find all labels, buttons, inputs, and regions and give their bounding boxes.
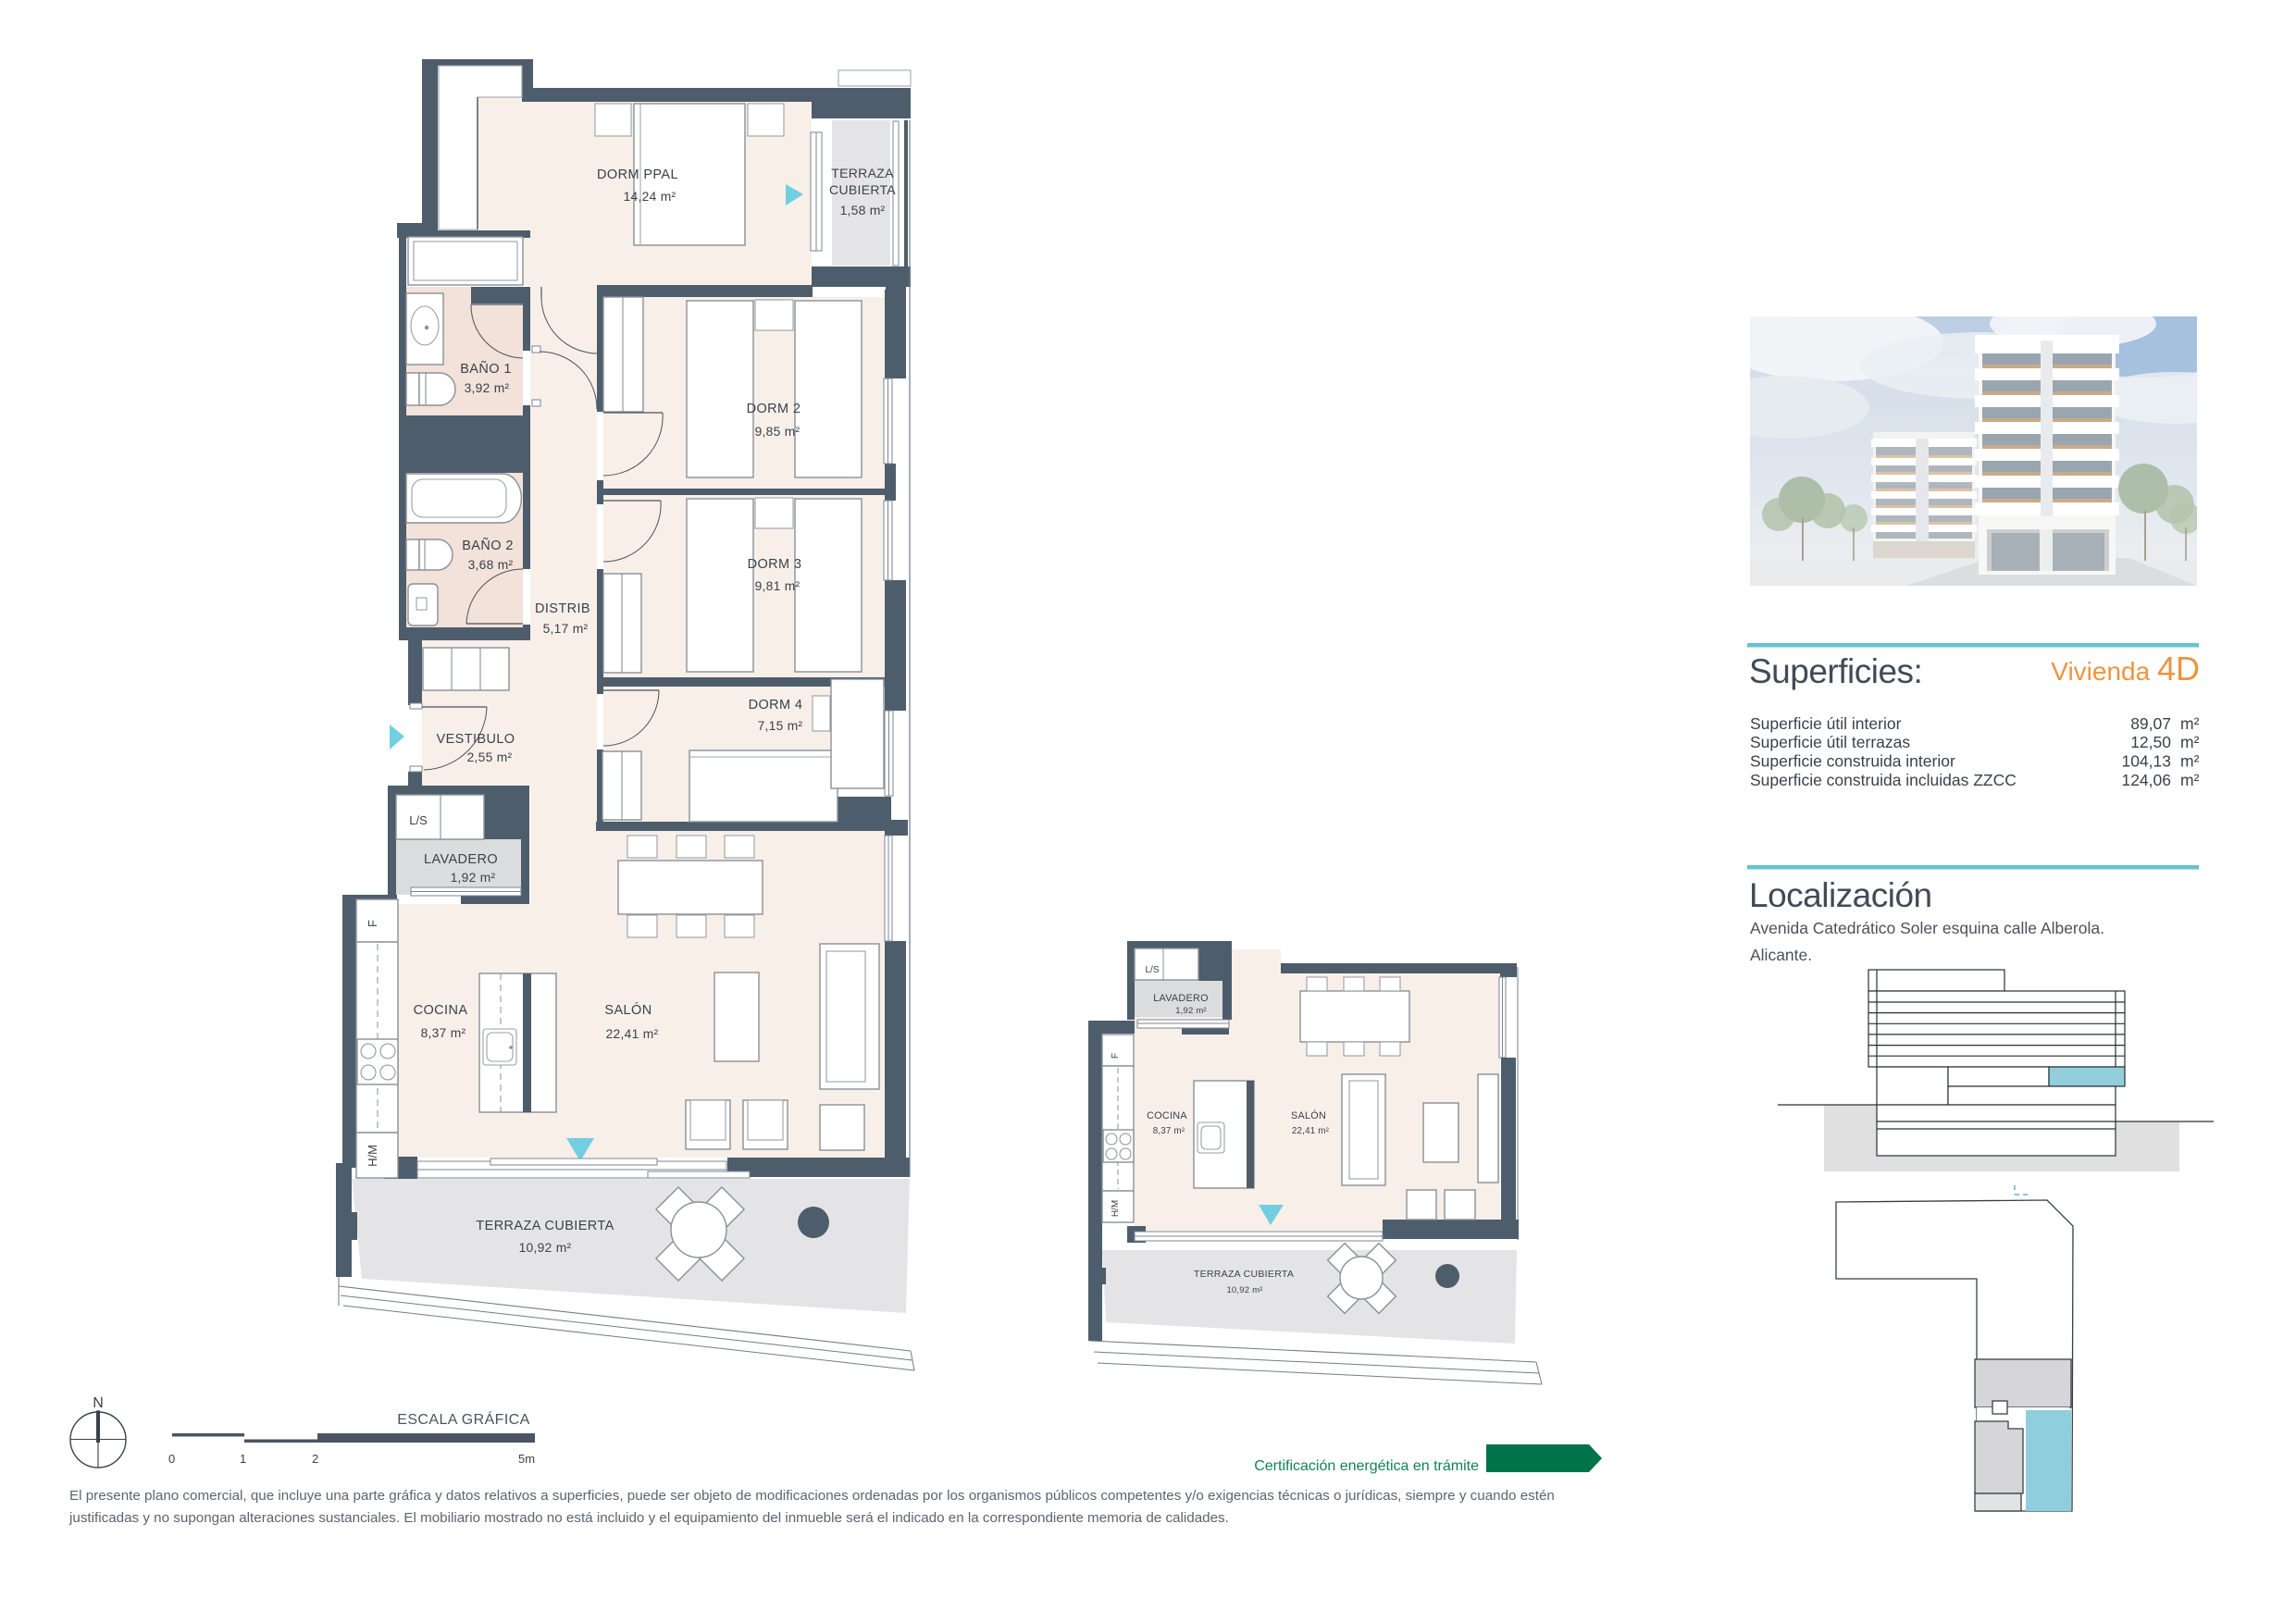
svg-text:L/S: L/S <box>1145 965 1159 975</box>
svg-text:N: N <box>93 1395 104 1411</box>
svg-text:COCINA: COCINA <box>1147 1110 1187 1121</box>
svg-text:H/M: H/M <box>1111 1200 1121 1217</box>
svg-text:DORM 4: DORM 4 <box>749 698 803 712</box>
svg-text:3,92 m²: 3,92 m² <box>465 381 510 395</box>
svg-text:H/M: H/M <box>366 1145 379 1167</box>
svg-text:22,41 m²: 22,41 m² <box>606 1027 659 1041</box>
svg-text:justificadas y no supongan alt: justificadas y no supongan alteraciones … <box>68 1510 1229 1526</box>
svg-text:DISTRIB: DISTRIB <box>535 601 590 616</box>
svg-text:Superficie útil interior: Superficie útil interior <box>1750 714 1902 733</box>
svg-text:1: 1 <box>240 1452 246 1466</box>
svg-text:104,13: 104,13 <box>2121 752 2171 771</box>
svg-text:DORM 3: DORM 3 <box>748 557 802 572</box>
svg-text:5,17 m²: 5,17 m² <box>543 622 589 636</box>
svg-text:Avenida Catedrático Soler esqu: Avenida Catedrático Soler esquina calle … <box>1750 919 2104 937</box>
svg-text:2: 2 <box>312 1452 318 1466</box>
svg-text:14,24 m²: 14,24 m² <box>624 190 676 204</box>
svg-text:VESTIBULO: VESTIBULO <box>437 732 515 747</box>
svg-text:8,37 m²: 8,37 m² <box>421 1026 466 1040</box>
svg-text:1,92 m²: 1,92 m² <box>1175 1006 1207 1016</box>
svg-text:5m: 5m <box>518 1452 535 1466</box>
svg-text:22,41 m²: 22,41 m² <box>1292 1126 1330 1136</box>
svg-text:F: F <box>1111 1053 1121 1059</box>
svg-text:m²: m² <box>2180 771 2200 789</box>
svg-text:3,68 m²: 3,68 m² <box>468 558 514 572</box>
svg-text:DORM PPAL: DORM PPAL <box>597 167 678 182</box>
svg-text:1,92 m²: 1,92 m² <box>451 871 496 885</box>
svg-text:Superficie útil terrazas: Superficie útil terrazas <box>1750 733 1910 751</box>
svg-text:2,55 m²: 2,55 m² <box>467 750 513 764</box>
svg-text:9,85 m²: 9,85 m² <box>755 425 800 439</box>
svg-text:L/S: L/S <box>409 813 428 827</box>
svg-text:0: 0 <box>168 1452 175 1466</box>
svg-text:Superficie construida interior: Superficie construida interior <box>1750 752 1955 771</box>
svg-text:10,92 m²: 10,92 m² <box>1226 1285 1262 1295</box>
svg-text:El presente plano comercial, q: El presente plano comercial, que incluye… <box>69 1488 1555 1504</box>
svg-text:Superficies:: Superficies: <box>1749 652 1922 690</box>
svg-text:89,07: 89,07 <box>2130 714 2171 733</box>
svg-text:F: F <box>366 920 379 927</box>
svg-text:DORM 2: DORM 2 <box>747 402 801 416</box>
svg-text:ESCALA GRÁFICA: ESCALA GRÁFICA <box>397 1410 529 1428</box>
svg-text:1,58 m²: 1,58 m² <box>840 203 886 217</box>
svg-text:LAVADERO: LAVADERO <box>1153 993 1209 1004</box>
svg-text:BAÑO 2: BAÑO 2 <box>462 538 514 553</box>
svg-text:8,37 m²: 8,37 m² <box>1153 1126 1185 1136</box>
svg-text:Alicante.: Alicante. <box>1750 946 1812 964</box>
svg-text:10,92 m²: 10,92 m² <box>519 1241 572 1255</box>
svg-text:m²: m² <box>2180 752 2200 771</box>
svg-text:BAÑO 1: BAÑO 1 <box>460 361 512 377</box>
svg-text:7,15 m²: 7,15 m² <box>758 719 803 733</box>
svg-text:COCINA: COCINA <box>414 1003 468 1018</box>
svg-text:Certificación energética en tr: Certificación energética en trámite <box>1254 1458 1479 1474</box>
svg-text:m²: m² <box>2180 714 2200 733</box>
svg-text:CUBIERTA: CUBIERTA <box>829 182 896 197</box>
svg-text:12,50: 12,50 <box>2130 733 2171 751</box>
svg-text:TERRAZA CUBIERTA: TERRAZA CUBIERTA <box>1194 1269 1294 1280</box>
svg-text:Superficie construida incluida: Superficie construida incluidas ZZCC <box>1750 771 2017 789</box>
svg-text:TERRAZA CUBIERTA: TERRAZA CUBIERTA <box>476 1219 614 1233</box>
svg-text:SALÓN: SALÓN <box>1291 1109 1326 1121</box>
svg-text:9,81 m²: 9,81 m² <box>755 579 800 593</box>
svg-text:TERRAZA: TERRAZA <box>831 166 894 180</box>
svg-text:LAVADERO: LAVADERO <box>424 852 498 867</box>
svg-text:124,06: 124,06 <box>2121 771 2171 789</box>
svg-text:Localización: Localización <box>1749 876 1932 914</box>
svg-text:m²: m² <box>2180 733 2200 751</box>
svg-text:SALÓN: SALÓN <box>604 1002 652 1018</box>
